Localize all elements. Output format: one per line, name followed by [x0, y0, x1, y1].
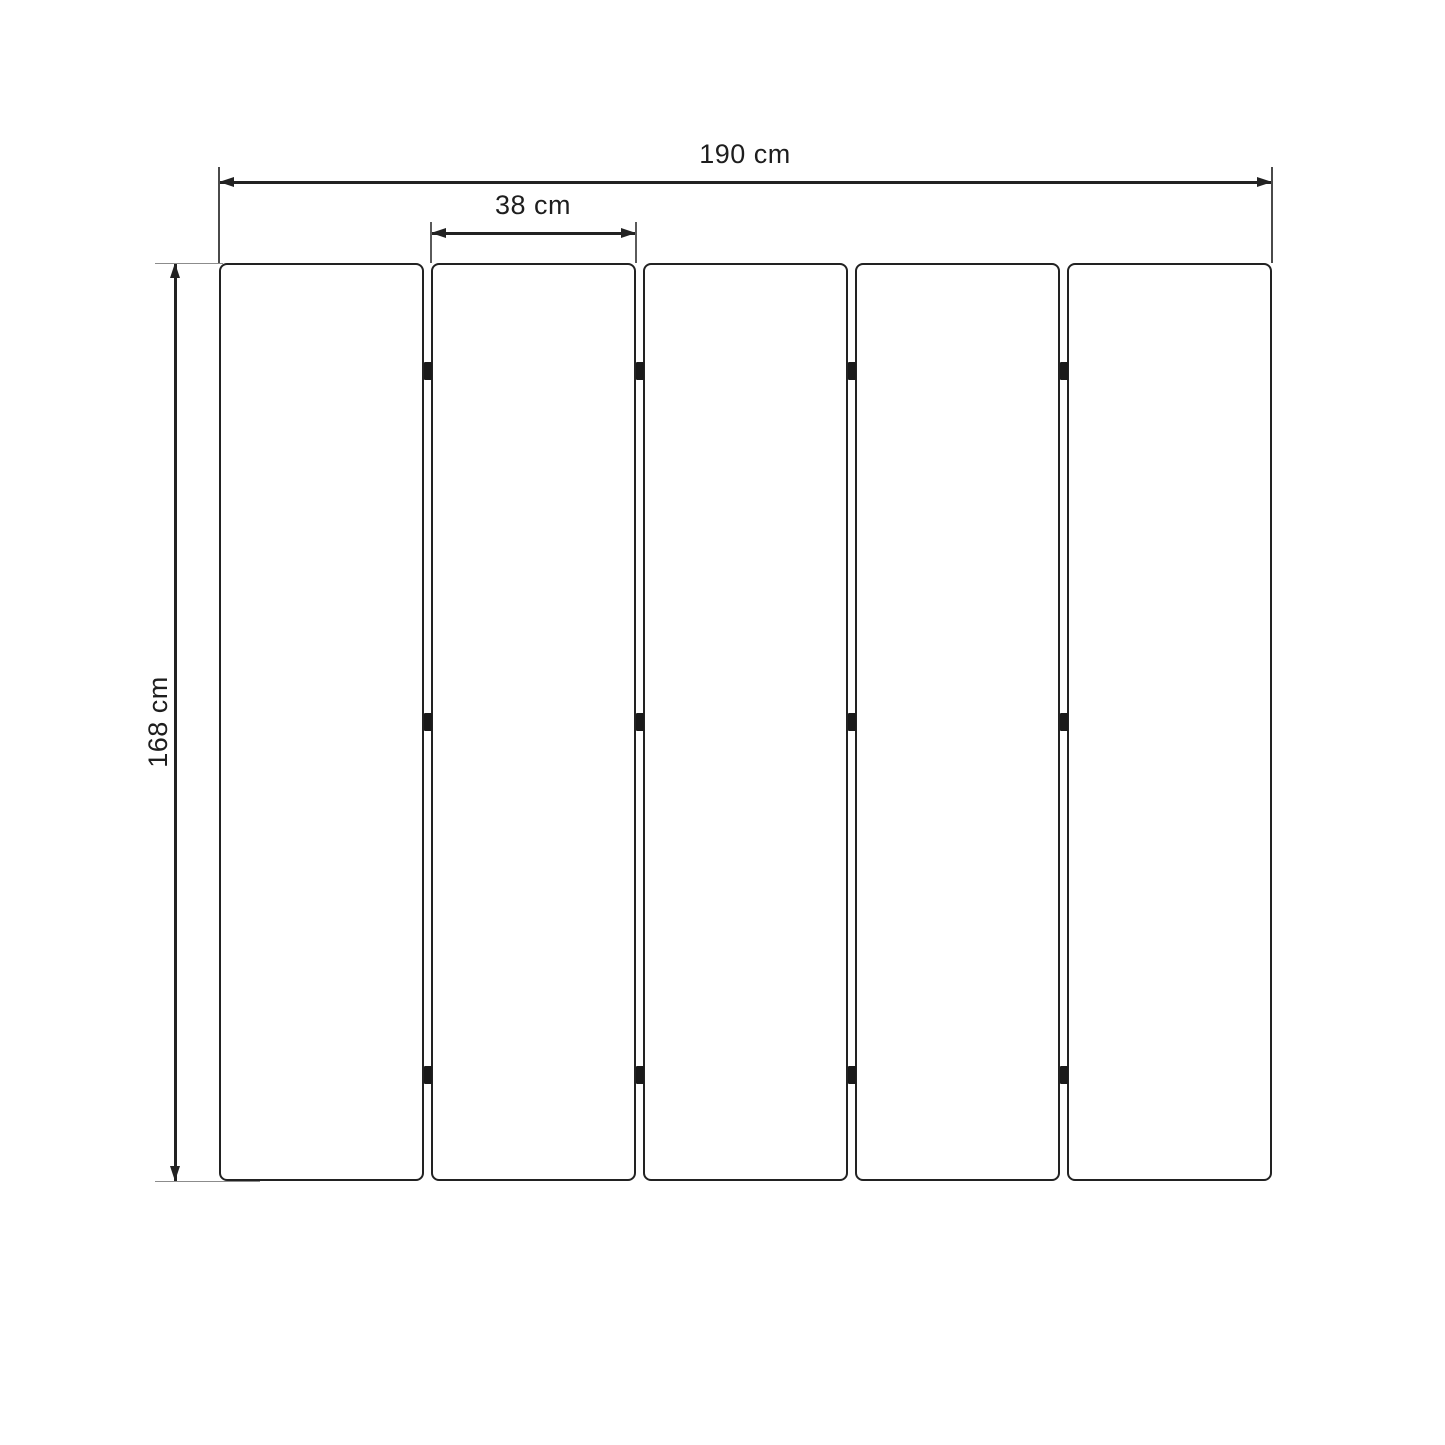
total-width-label: 190 cm: [699, 139, 791, 169]
arrowhead-down-icon: [170, 1166, 180, 1181]
diagram-canvas: 190 cm 38 cm 168 cm: [0, 0, 1445, 1445]
arrowhead-up-icon: [170, 263, 180, 278]
hinge: [424, 362, 432, 380]
total-width-dimension-line: [219, 181, 1272, 184]
height-dimension-line: [174, 263, 177, 1181]
extension-line-height-top: [155, 263, 223, 265]
arrowhead-left-icon: [431, 228, 446, 238]
height-label: 168 cm: [143, 676, 173, 768]
hinge: [636, 713, 644, 731]
hinge: [848, 362, 856, 380]
hinge: [636, 1066, 644, 1084]
extension-line-total-left: [218, 167, 220, 263]
hinge: [848, 713, 856, 731]
hinge: [424, 713, 432, 731]
hinge: [1060, 362, 1068, 380]
extension-line-panel-right: [635, 222, 637, 263]
panel: [643, 263, 848, 1181]
panel-width-dimension-line: [431, 232, 636, 235]
panel: [1067, 263, 1272, 1181]
extension-line-total-right: [1271, 167, 1273, 263]
hinge: [848, 1066, 856, 1084]
hinge: [1060, 713, 1068, 731]
panel-width-label: 38 cm: [495, 190, 571, 220]
hinge: [636, 362, 644, 380]
arrowhead-right-icon: [1257, 177, 1272, 187]
hinge: [424, 1066, 432, 1084]
panel: [219, 263, 424, 1181]
arrowhead-right-icon: [621, 228, 636, 238]
panel: [855, 263, 1060, 1181]
arrowhead-left-icon: [219, 177, 234, 187]
extension-line-panel-left: [430, 222, 432, 263]
hinge: [1060, 1066, 1068, 1084]
panel: [431, 263, 636, 1181]
